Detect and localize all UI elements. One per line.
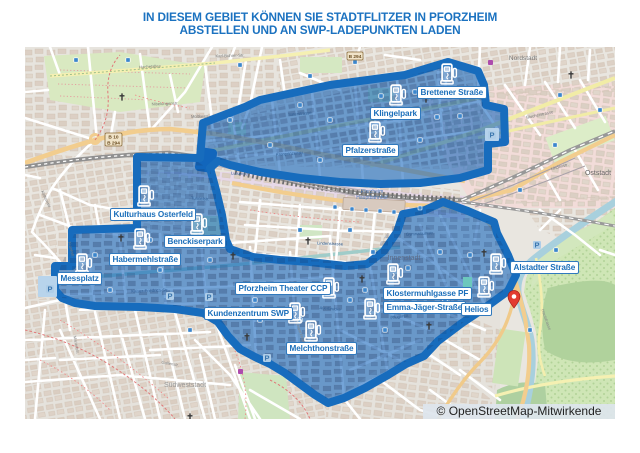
svg-text:B 10: B 10: [108, 135, 118, 141]
svg-text:Tunnelstr.: Tunnelstr.: [191, 196, 209, 202]
svg-text:Hauptbahnhof: Hauptbahnhof: [356, 195, 388, 201]
svg-text:P: P: [489, 131, 494, 140]
svg-text:Oststadt: Oststadt: [585, 170, 611, 177]
svg-text:P: P: [167, 292, 172, 301]
svg-text:Karl-Buhrer-Str.: Karl-Buhrer-Str.: [215, 52, 244, 58]
svg-text:Moltkestr.: Moltkestr.: [191, 114, 209, 119]
svg-text:Nordstadt: Nordstadt: [509, 55, 537, 62]
svg-text:P: P: [534, 241, 539, 250]
svg-text:Nibelungenstr.: Nibelungenstr.: [151, 101, 178, 107]
svg-text:Lindenstrasse: Lindenstrasse: [317, 241, 344, 247]
svg-text:Innenstadt: Innenstadt: [388, 255, 421, 262]
svg-text:Luisenstr.: Luisenstr.: [231, 171, 249, 177]
svg-text:P: P: [264, 354, 269, 363]
svg-text:P: P: [47, 285, 52, 294]
svg-text:P: P: [206, 293, 211, 302]
svg-text:Südweststadt: Südweststadt: [164, 382, 206, 389]
svg-text:B 294: B 294: [349, 54, 362, 60]
svg-text:B 294: B 294: [107, 141, 120, 147]
